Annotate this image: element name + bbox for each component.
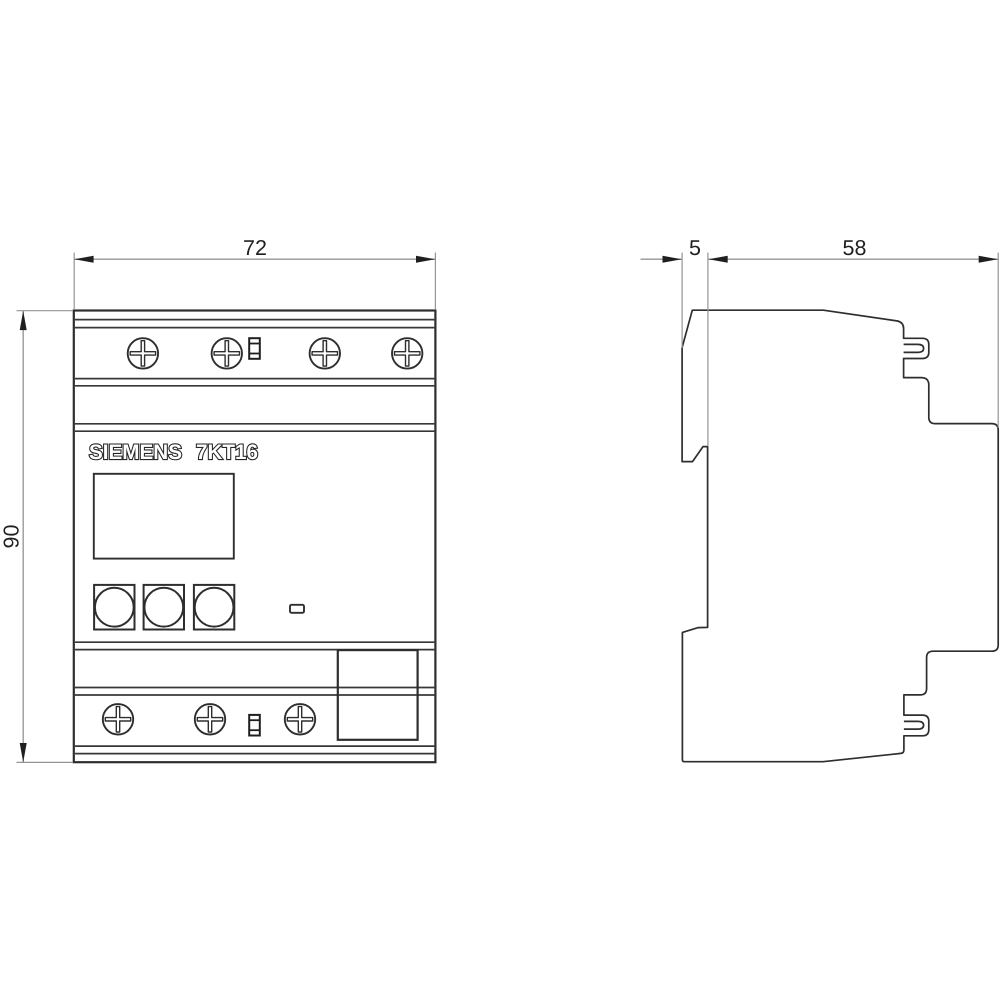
svg-text:90: 90 bbox=[0, 525, 24, 549]
svg-text:SIEMENS: SIEMENS bbox=[89, 441, 182, 464]
svg-text:7KT16: 7KT16 bbox=[196, 441, 258, 464]
svg-text:72: 72 bbox=[243, 236, 267, 260]
svg-text:5: 5 bbox=[689, 236, 701, 260]
svg-text:58: 58 bbox=[843, 236, 867, 260]
